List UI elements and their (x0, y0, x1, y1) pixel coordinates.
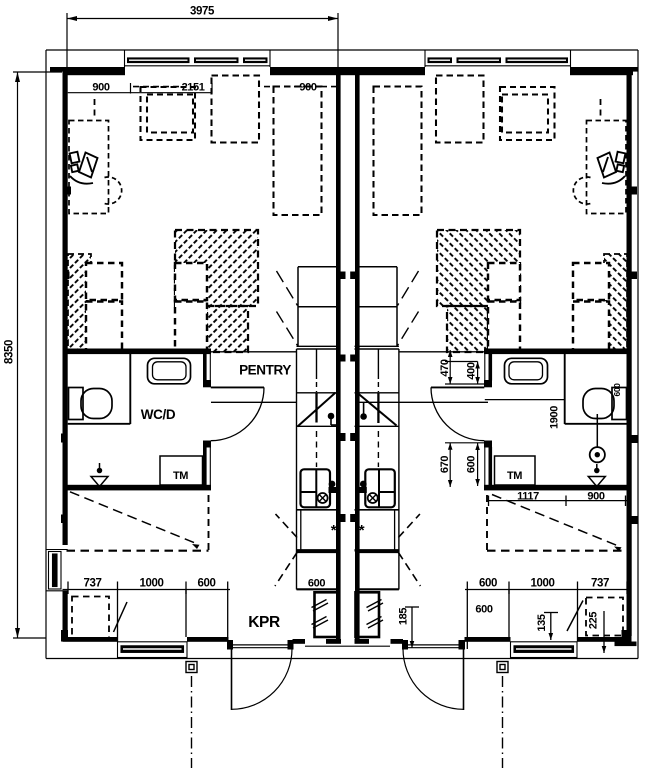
svg-text:8350: 8350 (4, 340, 16, 364)
svg-text:WC/D: WC/D (141, 407, 176, 422)
svg-text:600: 600 (479, 578, 497, 590)
svg-text:185: 185 (398, 608, 410, 625)
svg-text:*: * (331, 522, 337, 539)
svg-text:1117: 1117 (517, 491, 539, 503)
svg-text:KPR: KPR (248, 614, 280, 631)
svg-text:600: 600 (466, 456, 478, 473)
svg-text:900: 900 (587, 491, 604, 503)
svg-text:PENTRY: PENTRY (239, 363, 291, 378)
svg-text:600: 600 (475, 604, 492, 616)
svg-text:1900: 1900 (549, 406, 561, 429)
svg-text:225: 225 (588, 612, 600, 629)
svg-text:670: 670 (439, 456, 451, 473)
svg-text:1000: 1000 (531, 578, 555, 590)
svg-text:737: 737 (84, 578, 102, 590)
svg-text:*: * (359, 522, 365, 539)
svg-text:600: 600 (198, 578, 216, 590)
svg-text:600: 600 (612, 383, 622, 397)
svg-text:1000: 1000 (140, 578, 164, 590)
svg-text:600: 600 (308, 578, 325, 590)
svg-text:900: 900 (92, 82, 109, 94)
svg-text:3975: 3975 (190, 6, 215, 18)
svg-text:135: 135 (536, 614, 548, 631)
svg-text:737: 737 (591, 578, 609, 590)
svg-text:400: 400 (466, 362, 478, 379)
svg-text:TM: TM (507, 470, 522, 482)
svg-text:TM: TM (173, 470, 188, 482)
svg-text:470: 470 (439, 359, 451, 376)
